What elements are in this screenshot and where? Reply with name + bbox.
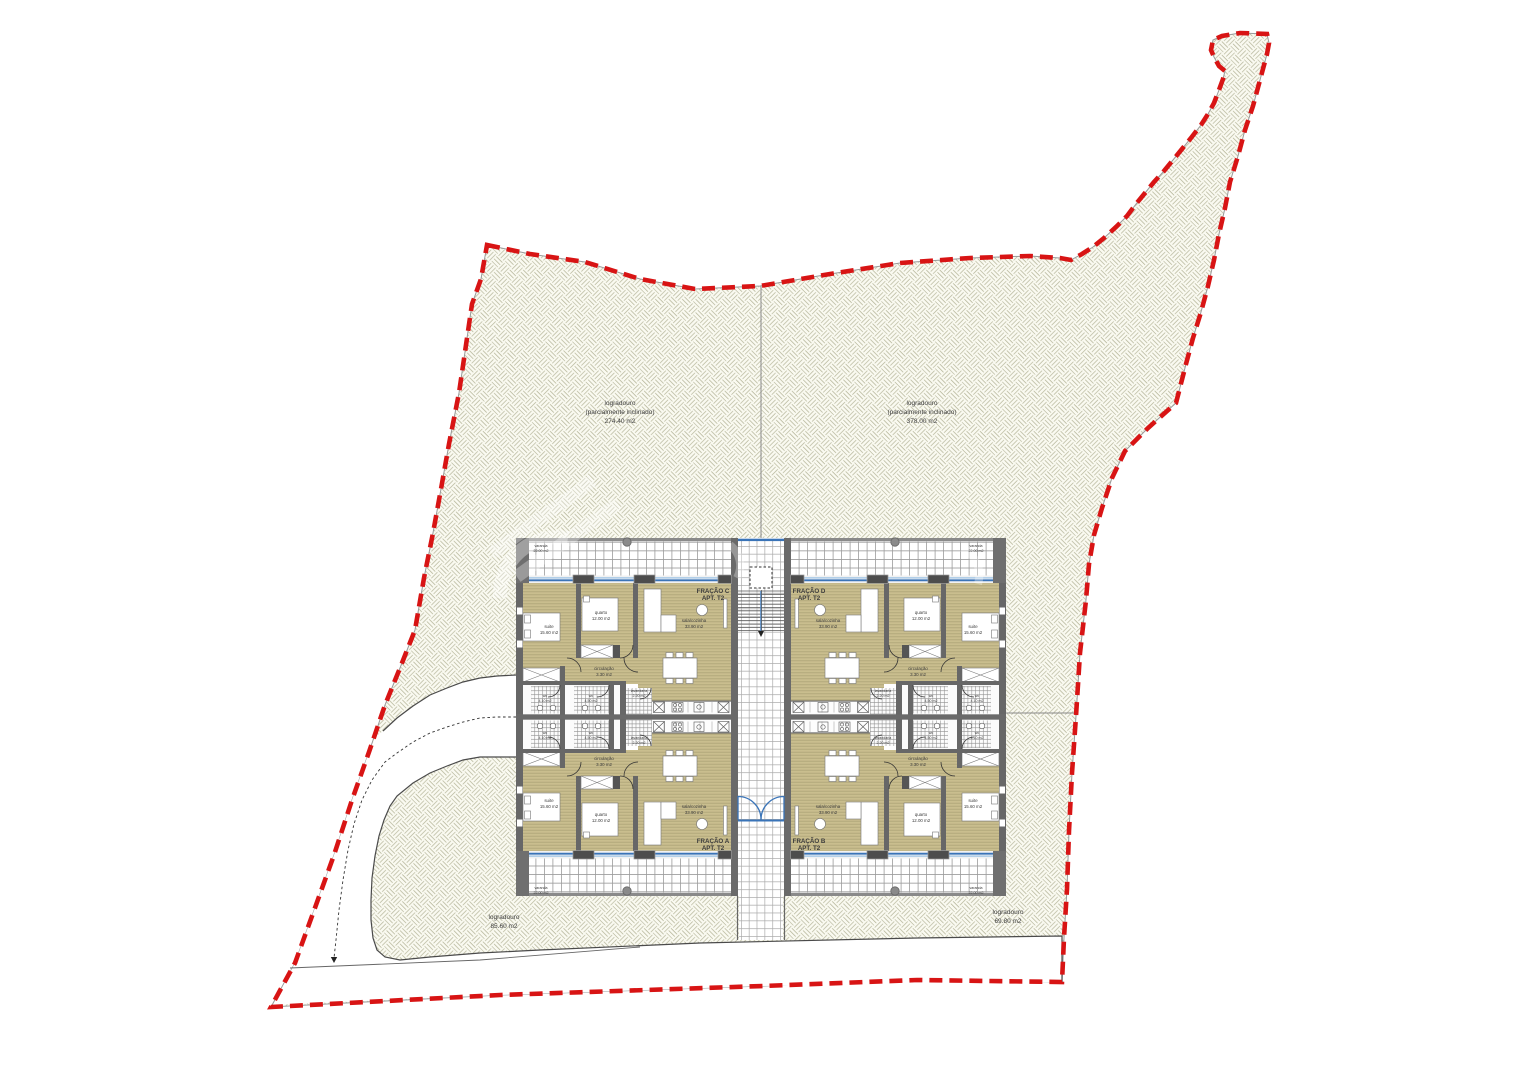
svg-text:15.60 m2: 15.60 m2 <box>964 630 983 635</box>
svg-text:274.40 m2: 274.40 m2 <box>605 418 636 425</box>
svg-text:suite: suite <box>968 624 978 629</box>
svg-text:quarto: quarto <box>915 812 928 817</box>
svg-text:sala/cozinha: sala/cozinha <box>682 618 707 623</box>
svg-text:4.10 m2: 4.10 m2 <box>539 736 552 740</box>
svg-text:3.30 m2: 3.30 m2 <box>910 762 926 767</box>
svg-text:FRAÇÃO D: FRAÇÃO D <box>793 588 826 595</box>
svg-text:APT. T2: APT. T2 <box>798 845 821 852</box>
svg-text:4.50 m2: 4.50 m2 <box>925 699 938 703</box>
svg-text:lavandaria: lavandaria <box>631 736 648 740</box>
svg-text:4.50 m2: 4.50 m2 <box>585 699 598 703</box>
svg-text:wc: wc <box>589 694 594 698</box>
svg-text:33.90 m2: 33.90 m2 <box>819 810 838 815</box>
svg-text:logradouro: logradouro <box>604 400 635 407</box>
svg-text:33.90 m2: 33.90 m2 <box>685 810 704 815</box>
svg-text:2.20 m2: 2.20 m2 <box>633 694 646 698</box>
svg-text:2.20 m2: 2.20 m2 <box>877 741 890 745</box>
svg-text:circulação: circulação <box>908 756 928 761</box>
svg-text:FRAÇÃO C: FRAÇÃO C <box>697 588 730 595</box>
svg-text:3.30 m2: 3.30 m2 <box>596 672 612 677</box>
svg-text:circulação: circulação <box>594 666 614 671</box>
svg-text:lavandaria: lavandaria <box>875 689 892 693</box>
svg-text:4.10 m2: 4.10 m2 <box>971 699 984 703</box>
svg-text:(parcialmente inclinado): (parcialmente inclinado) <box>585 409 654 416</box>
svg-text:4.50 m2: 4.50 m2 <box>585 736 598 740</box>
svg-text:wc: wc <box>589 731 594 735</box>
svg-text:2.20 m2: 2.20 m2 <box>877 694 890 698</box>
svg-text:(parcialmente inclinado): (parcialmente inclinado) <box>887 409 956 416</box>
svg-text:FRAÇÃO B: FRAÇÃO B <box>793 838 826 845</box>
svg-text:sala/cozinha: sala/cozinha <box>682 804 707 809</box>
svg-text:33.90 m2: 33.90 m2 <box>685 624 704 629</box>
svg-text:quarto: quarto <box>595 812 608 817</box>
svg-text:22.00 m2: 22.00 m2 <box>969 549 984 553</box>
svg-text:3.30 m2: 3.30 m2 <box>910 672 926 677</box>
svg-text:APT. T2: APT. T2 <box>798 595 821 602</box>
svg-text:lavandaria: lavandaria <box>875 736 892 740</box>
svg-text:varanda: varanda <box>535 886 548 890</box>
svg-text:suite: suite <box>544 624 554 629</box>
svg-text:12.00 m2: 12.00 m2 <box>912 818 931 823</box>
svg-text:circulação: circulação <box>908 666 928 671</box>
svg-text:wc: wc <box>975 694 980 698</box>
svg-text:15.60 m2: 15.60 m2 <box>540 630 559 635</box>
svg-text:4.10 m2: 4.10 m2 <box>971 736 984 740</box>
svg-text:sala/cozinha: sala/cozinha <box>816 804 841 809</box>
svg-text:suite: suite <box>544 798 554 803</box>
svg-text:sala/cozinha: sala/cozinha <box>816 618 841 623</box>
svg-text:4.50 m2: 4.50 m2 <box>925 736 938 740</box>
svg-text:varanda: varanda <box>970 886 983 890</box>
svg-text:wc: wc <box>975 731 980 735</box>
svg-text:378.00 m2: 378.00 m2 <box>907 418 938 425</box>
svg-text:lavandaria: lavandaria <box>631 689 648 693</box>
svg-text:4.10 m2: 4.10 m2 <box>539 699 552 703</box>
svg-text:varanda: varanda <box>970 544 983 548</box>
svg-text:quarto: quarto <box>915 610 928 615</box>
svg-text:circulação: circulação <box>594 756 614 761</box>
svg-text:suite: suite <box>968 798 978 803</box>
svg-text:12.00 m2: 12.00 m2 <box>592 616 611 621</box>
svg-text:69.80 m2: 69.80 m2 <box>994 918 1021 925</box>
svg-text:3.30 m2: 3.30 m2 <box>596 762 612 767</box>
svg-text:APT. T2: APT. T2 <box>702 595 725 602</box>
svg-text:wc: wc <box>929 731 934 735</box>
svg-text:APT. T2: APT. T2 <box>702 845 725 852</box>
svg-text:2.20 m2: 2.20 m2 <box>633 741 646 745</box>
svg-text:logradouro: logradouro <box>906 400 937 407</box>
svg-text:wc: wc <box>929 694 934 698</box>
svg-text:logradouro: logradouro <box>992 909 1023 916</box>
svg-text:quarto: quarto <box>595 610 608 615</box>
svg-text:22.00 m2: 22.00 m2 <box>534 891 549 895</box>
svg-text:15.60 m2: 15.60 m2 <box>540 804 559 809</box>
svg-text:logradouro: logradouro <box>488 914 519 921</box>
svg-text:22.00 m2: 22.00 m2 <box>534 549 549 553</box>
svg-text:12.00 m2: 12.00 m2 <box>592 818 611 823</box>
svg-text:varanda: varanda <box>535 544 548 548</box>
svg-text:22.00 m2: 22.00 m2 <box>969 891 984 895</box>
svg-text:wc: wc <box>543 731 548 735</box>
svg-text:wc: wc <box>543 694 548 698</box>
svg-text:85.60 m2: 85.60 m2 <box>490 923 517 930</box>
svg-text:15.60 m2: 15.60 m2 <box>964 804 983 809</box>
svg-text:FRAÇÃO A: FRAÇÃO A <box>697 838 730 845</box>
svg-text:12.00 m2: 12.00 m2 <box>912 616 931 621</box>
svg-text:33.90 m2: 33.90 m2 <box>819 624 838 629</box>
